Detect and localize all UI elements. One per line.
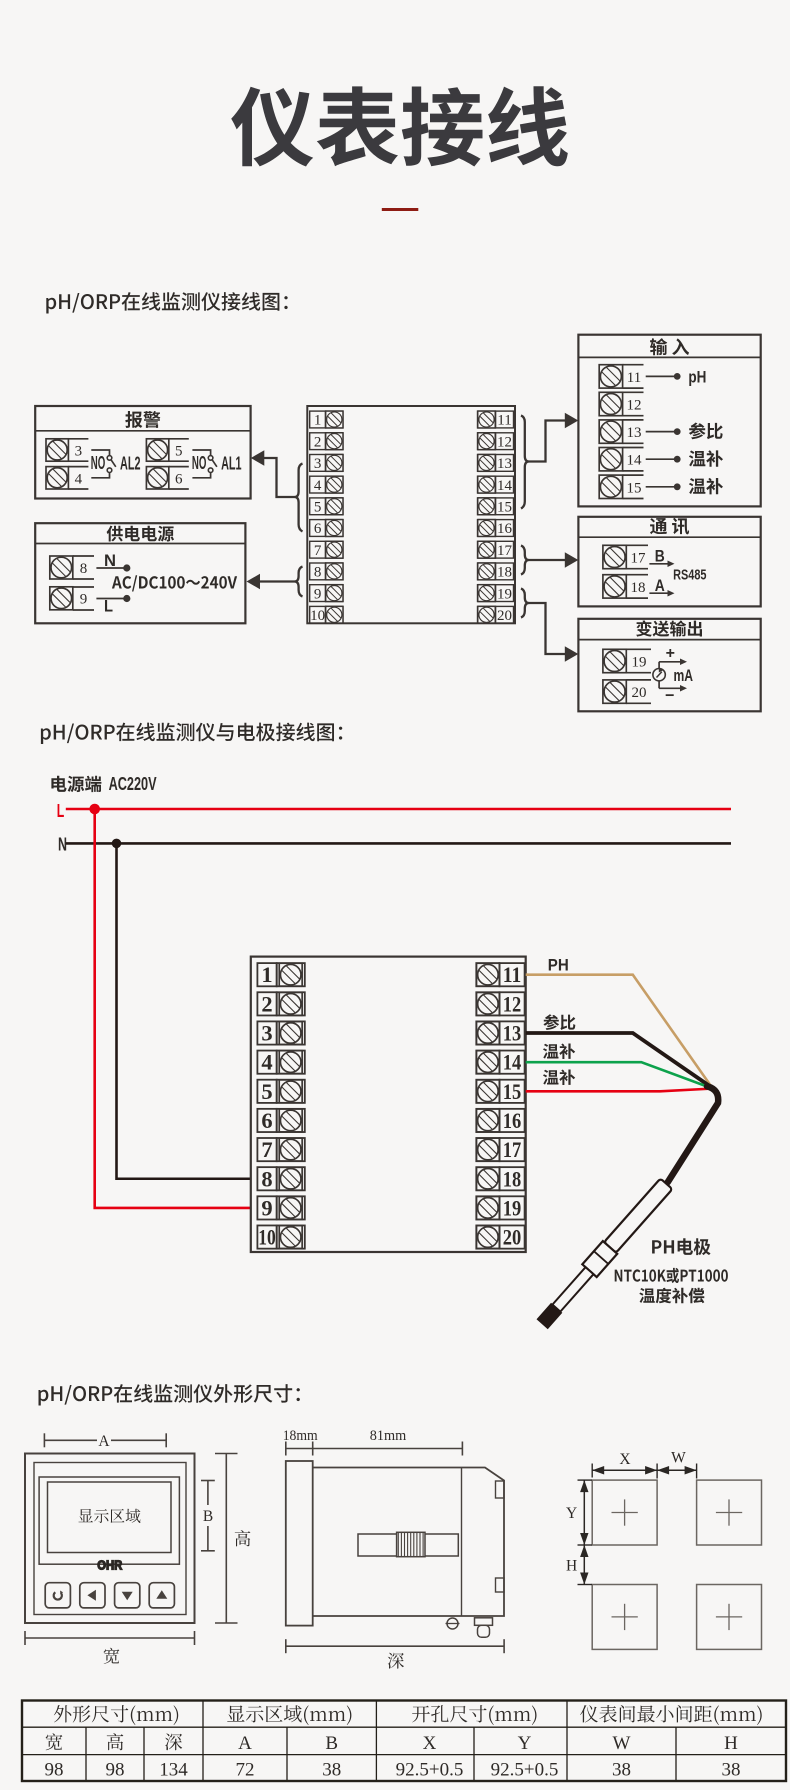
svg-text:PH: PH xyxy=(548,956,569,975)
svg-text:5: 5 xyxy=(314,500,322,516)
svg-text:12: 12 xyxy=(627,398,642,414)
svg-text:NO: NO xyxy=(91,453,106,473)
svg-text:6: 6 xyxy=(261,1108,272,1133)
svg-text:98: 98 xyxy=(106,1760,125,1781)
svg-text:AL2: AL2 xyxy=(120,454,141,474)
svg-text:L: L xyxy=(104,597,113,616)
svg-text:1: 1 xyxy=(261,962,272,987)
svg-text:16: 16 xyxy=(503,1108,522,1133)
svg-text:14: 14 xyxy=(503,1050,522,1075)
svg-text:19: 19 xyxy=(632,655,647,671)
svg-text:mA: mA xyxy=(674,667,694,685)
svg-text:4: 4 xyxy=(75,471,83,487)
svg-text:12: 12 xyxy=(497,434,512,450)
svg-text:W: W xyxy=(613,1733,631,1754)
svg-text:17: 17 xyxy=(631,551,647,567)
svg-text:13: 13 xyxy=(497,456,512,472)
svg-text:−: − xyxy=(665,688,674,705)
svg-text:Y: Y xyxy=(518,1733,532,1754)
svg-text:H: H xyxy=(566,1557,577,1574)
svg-text:19: 19 xyxy=(497,586,512,602)
svg-text:9: 9 xyxy=(314,586,322,602)
svg-text:18: 18 xyxy=(497,565,512,581)
svg-text:11: 11 xyxy=(627,370,641,386)
svg-text:RS485: RS485 xyxy=(673,568,706,584)
svg-text:A: A xyxy=(98,1433,110,1450)
svg-text:13: 13 xyxy=(503,1021,522,1046)
svg-text:OHR: OHR xyxy=(97,1558,122,1572)
svg-text:N: N xyxy=(104,551,116,570)
svg-text:Y: Y xyxy=(566,1505,577,1522)
svg-text:38: 38 xyxy=(612,1760,631,1781)
svg-text:20: 20 xyxy=(503,1225,522,1250)
svg-text:14: 14 xyxy=(497,478,513,494)
svg-text:2: 2 xyxy=(261,991,272,1016)
svg-text:4: 4 xyxy=(261,1050,272,1075)
svg-text:10: 10 xyxy=(310,608,325,624)
svg-text:L: L xyxy=(57,801,65,821)
svg-text:6: 6 xyxy=(314,521,322,537)
svg-text:3: 3 xyxy=(314,456,322,472)
svg-text:81mm: 81mm xyxy=(370,1428,407,1444)
svg-text:18: 18 xyxy=(631,580,646,596)
svg-text:38: 38 xyxy=(722,1760,741,1781)
svg-text:17: 17 xyxy=(497,543,513,559)
svg-text:AC220V: AC220V xyxy=(109,774,157,794)
svg-text:17: 17 xyxy=(503,1137,522,1162)
svg-text:18: 18 xyxy=(503,1166,522,1191)
svg-text:10: 10 xyxy=(258,1225,276,1250)
svg-text:9: 9 xyxy=(80,592,88,608)
svg-text:H: H xyxy=(724,1733,738,1754)
svg-text:2: 2 xyxy=(314,434,322,450)
svg-text:B: B xyxy=(655,547,665,566)
svg-text:15: 15 xyxy=(497,500,512,516)
svg-text:14: 14 xyxy=(627,453,643,469)
svg-text:pH: pH xyxy=(688,367,706,386)
svg-text:B: B xyxy=(325,1733,338,1754)
svg-text:8: 8 xyxy=(314,565,322,581)
svg-text:A: A xyxy=(238,1733,252,1754)
svg-text:5: 5 xyxy=(175,444,183,460)
svg-text:134: 134 xyxy=(159,1760,188,1781)
svg-text:16: 16 xyxy=(497,521,513,537)
svg-text:3: 3 xyxy=(261,1021,272,1046)
svg-text:3: 3 xyxy=(75,444,83,460)
svg-text:9: 9 xyxy=(261,1195,272,1220)
svg-text:N: N xyxy=(58,835,67,855)
svg-text:13: 13 xyxy=(627,425,642,441)
svg-text:20: 20 xyxy=(497,608,512,624)
svg-text:A: A xyxy=(655,576,665,595)
svg-text:W: W xyxy=(671,1450,686,1467)
svg-text:6: 6 xyxy=(175,471,183,487)
svg-text:15: 15 xyxy=(627,480,642,496)
svg-text:1: 1 xyxy=(314,413,322,429)
svg-text:X: X xyxy=(423,1733,437,1754)
svg-text:38: 38 xyxy=(322,1760,341,1781)
svg-text:92.5+0.5: 92.5+0.5 xyxy=(396,1760,464,1781)
svg-text:4: 4 xyxy=(314,478,322,494)
svg-text:B: B xyxy=(203,1508,213,1525)
svg-text:98: 98 xyxy=(45,1760,64,1781)
svg-text:8: 8 xyxy=(80,561,88,577)
svg-text:X: X xyxy=(619,1451,630,1468)
svg-text:AL1: AL1 xyxy=(221,454,242,474)
svg-text:11: 11 xyxy=(503,962,522,987)
svg-text:92.5+0.5: 92.5+0.5 xyxy=(491,1760,559,1781)
svg-text:7: 7 xyxy=(314,543,322,559)
svg-text:11: 11 xyxy=(497,413,511,429)
svg-text:20: 20 xyxy=(632,685,647,701)
svg-text:12: 12 xyxy=(503,991,522,1016)
svg-text:NO: NO xyxy=(192,453,207,473)
svg-text:19: 19 xyxy=(503,1195,522,1220)
svg-text:72: 72 xyxy=(236,1760,255,1781)
svg-text:5: 5 xyxy=(261,1079,272,1104)
svg-text:15: 15 xyxy=(503,1079,522,1104)
svg-text:7: 7 xyxy=(261,1137,272,1162)
svg-text:8: 8 xyxy=(261,1166,272,1191)
svg-text:+: + xyxy=(666,645,675,662)
